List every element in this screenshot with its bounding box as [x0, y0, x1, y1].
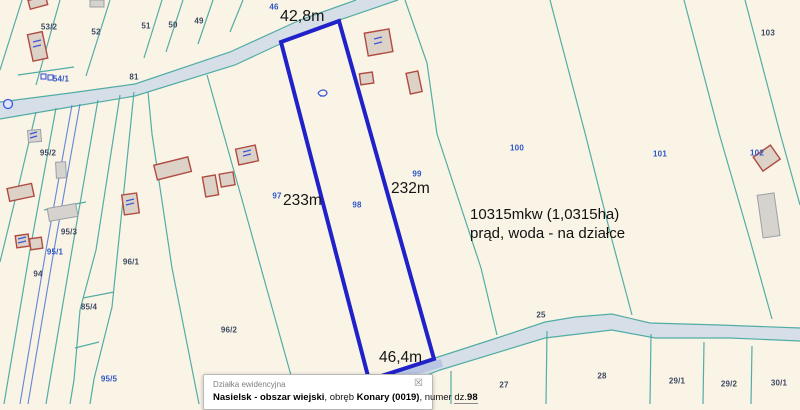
- info-box-title: Działka ewidencyjna: [213, 380, 285, 389]
- parcel-label-100: 100: [510, 144, 524, 153]
- parcel-label-95/2: 95/2: [40, 149, 56, 158]
- parcel-label-49: 49: [194, 17, 203, 26]
- plot-utilities-text: prąd, woda - na działce: [470, 224, 625, 243]
- parcel-label-95/1: 95/1: [47, 248, 63, 257]
- measurement-left: 233m: [283, 192, 322, 210]
- plot-annotation: 10315mkw (1,0315ha) prąd, woda - na dzia…: [470, 205, 625, 243]
- parcel-description: Nasielsk - obszar wiejski, obręb Konary …: [213, 392, 423, 403]
- parcel-label-96/2: 96/2: [221, 326, 237, 335]
- parcel-label-101: 101: [653, 150, 667, 159]
- parcel-label-99: 99: [412, 170, 421, 179]
- close-icon[interactable]: ☒: [414, 379, 423, 389]
- parcel-label-30/1: 30/1: [771, 379, 787, 388]
- measurement-right: 232m: [391, 180, 430, 198]
- parcel-label-52: 52: [91, 28, 100, 37]
- parcel-label-29/2: 29/2: [721, 380, 737, 389]
- parcel-label-51: 51: [141, 22, 150, 31]
- parcel-label-53/2: 53/2: [41, 23, 57, 32]
- cadastral-lines-left: [0, 75, 299, 404]
- parcel-label-103: 103: [761, 29, 775, 38]
- parcel-label-85/4: 85/4: [81, 303, 97, 312]
- parcel-label-98: 98: [352, 201, 361, 210]
- parcel-label-95/3: 95/3: [61, 228, 77, 237]
- description-segment: Nasielsk - obszar wiejski: [213, 392, 324, 403]
- parcel-info-box: Działka ewidencyjna ☒ Nasielsk - obszar …: [203, 374, 433, 410]
- cadastral-lines-right: [405, 0, 800, 335]
- parcel-label-46: 46: [269, 3, 278, 12]
- map-canvas[interactable]: 53/252515049461038154/195/21001021019997…: [0, 0, 800, 404]
- parcel-label-97: 97: [272, 192, 281, 201]
- parcel-label-50: 50: [168, 21, 177, 30]
- cadastral-map-layer: [0, 0, 800, 404]
- parcel-label-27: 27: [499, 381, 508, 390]
- description-segment: dz.: [454, 392, 467, 404]
- parcel-label-102: 102: [750, 149, 764, 158]
- parcel-label-96/1: 96/1: [123, 258, 139, 267]
- parcel-label-81: 81: [129, 73, 138, 82]
- parcel-label-29/1: 29/1: [669, 377, 685, 386]
- parcel-label-54/1: 54/1: [53, 75, 69, 84]
- parcel-label-95/5: 95/5: [101, 375, 117, 384]
- parcel-label-94: 94: [33, 270, 42, 279]
- plot-area-text: 10315mkw (1,0315ha): [470, 205, 625, 224]
- parcel-label-25: 25: [536, 311, 545, 320]
- description-segment: , numer: [419, 392, 454, 403]
- parcel-label-28: 28: [597, 372, 606, 381]
- measurement-bottom: 46,4m: [379, 349, 422, 367]
- description-segment: 98: [467, 392, 478, 404]
- description-segment: , obręb: [324, 392, 356, 403]
- description-segment: Konary (0019): [357, 392, 420, 403]
- measurement-top: 42,8m: [280, 8, 324, 26]
